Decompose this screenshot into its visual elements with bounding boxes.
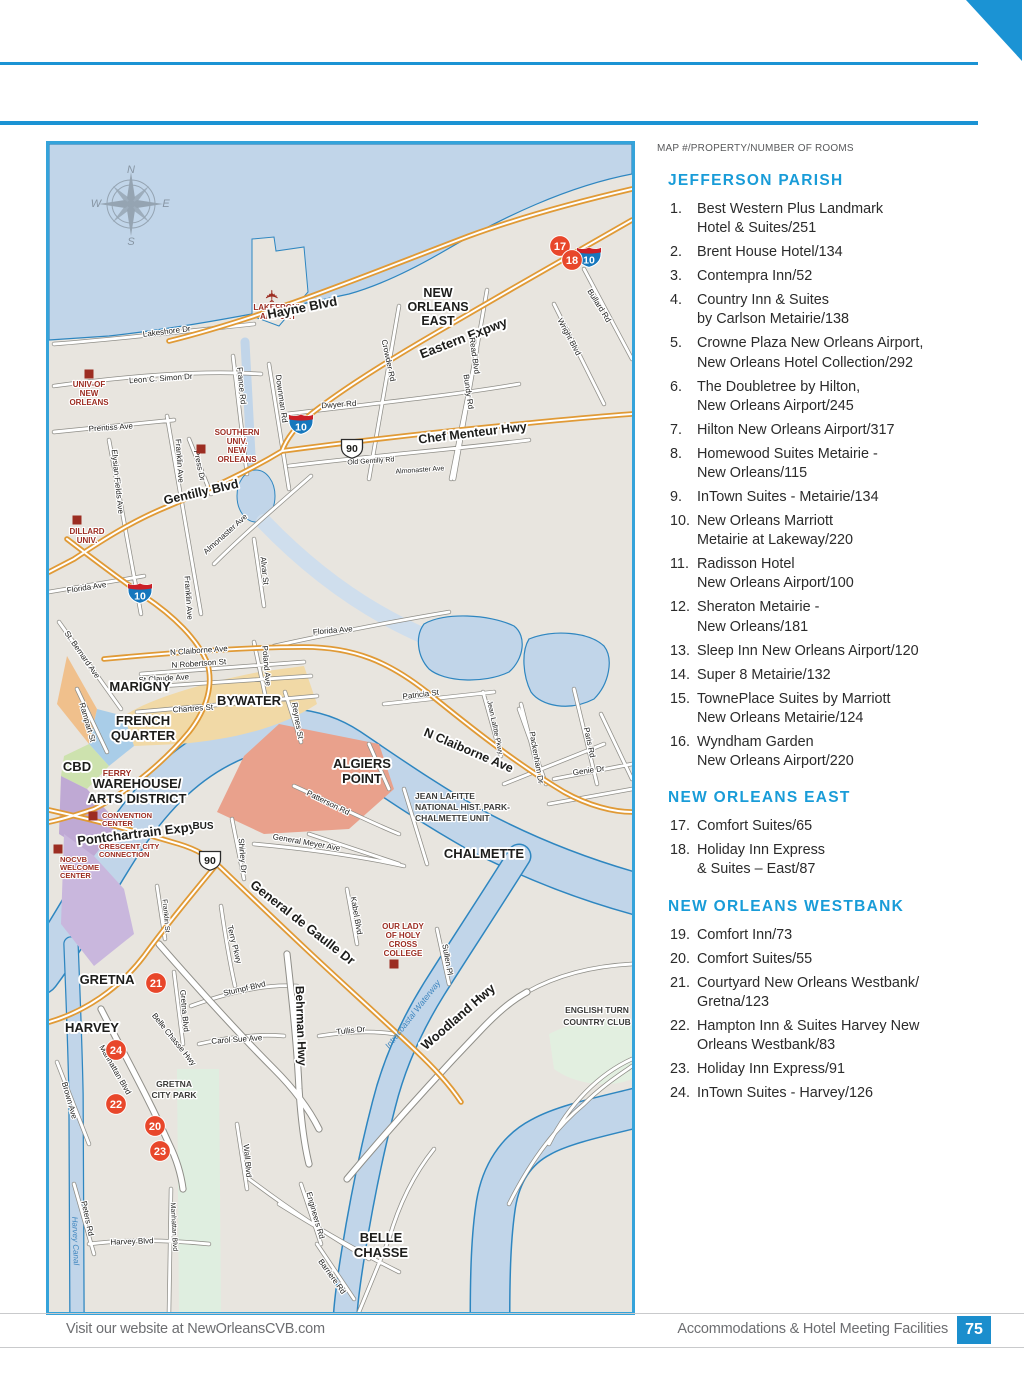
map-marker-24: 24 xyxy=(106,1040,127,1061)
map-label: UNIV. xyxy=(227,437,248,446)
section-header: NEW ORLEANS EAST xyxy=(668,789,1022,807)
page-number: 75 xyxy=(957,1316,991,1344)
section-header: NEW ORLEANS WESTBANK xyxy=(668,898,1022,916)
svg-text:18: 18 xyxy=(566,255,578,267)
svg-text:90: 90 xyxy=(346,443,358,455)
hotel-map-number: 21. xyxy=(670,974,697,1012)
hotel-name-rooms: Hilton New Orleans Airport/317 xyxy=(697,421,895,440)
pond-west xyxy=(418,616,522,680)
map-label: CHALMETTE xyxy=(444,846,524,861)
hotel-list-item: 9.InTown Suites - Metairie/134 xyxy=(670,488,1022,507)
svg-text:20: 20 xyxy=(149,1121,161,1133)
map-label: CENTER xyxy=(60,871,91,880)
hotel-map-number: 13. xyxy=(670,642,697,661)
map-label: NEW xyxy=(80,389,99,398)
map-label: BYWATER xyxy=(217,693,282,708)
hotel-list-item: 19.Comfort Inn/73 xyxy=(670,926,1022,945)
hotel-list-item: 6.The Doubletree by Hilton, New Orleans … xyxy=(670,378,1022,416)
hotel-map-number: 16. xyxy=(670,733,697,771)
footer-rule-top xyxy=(0,1313,1024,1314)
map-label: HARVEY xyxy=(65,1020,119,1035)
map-label: EAST xyxy=(421,314,455,328)
map-label: ORLEANS xyxy=(217,455,257,464)
map-label: BUS xyxy=(192,821,213,832)
hotel-name-rooms: Contempra Inn/52 xyxy=(697,267,812,286)
map-label: OUR LADY xyxy=(382,922,424,931)
hotel-map-number: 22. xyxy=(670,1017,697,1055)
svg-text:90: 90 xyxy=(204,855,216,867)
hotel-list-item: 8.Homewood Suites Metairie - New Orleans… xyxy=(670,445,1022,483)
poi-square xyxy=(73,516,82,525)
map-label: GRETNA xyxy=(156,1079,192,1089)
hotel-map-number: 17. xyxy=(670,817,697,836)
hotel-list-item: 24.InTown Suites - Harvey/126 xyxy=(670,1084,1022,1103)
hotel-map-number: 24. xyxy=(670,1084,697,1103)
hotel-name-rooms: Comfort Inn/73 xyxy=(697,926,792,945)
hotel-list-item: 16.Wyndham Garden New Orleans Airport/22… xyxy=(670,733,1022,771)
poi-square xyxy=(390,960,399,969)
hotel-list-item: 22.Hampton Inn & Suites Harvey New Orlea… xyxy=(670,1017,1022,1055)
map-label: POINT xyxy=(342,771,382,786)
hotel-name-rooms: Sleep Inn New Orleans Airport/120 xyxy=(697,642,919,661)
hotel-list-item: 5.Crowne Plaza New Orleans Airport, New … xyxy=(670,334,1022,372)
hotel-list-item: 1.Best Western Plus Landmark Hotel & Sui… xyxy=(670,200,1022,238)
hotel-list-item: 20.Comfort Suites/55 xyxy=(670,950,1022,969)
svg-text:23: 23 xyxy=(154,1146,166,1158)
hotel-list-item: 13.Sleep Inn New Orleans Airport/120 xyxy=(670,642,1022,661)
compass-letter: S xyxy=(127,236,135,248)
map-label: JEAN LAFITTE xyxy=(415,791,475,801)
index-legend: MAP #/PROPERTY/NUMBER OF ROOMS xyxy=(657,143,1022,154)
hotel-map-number: 7. xyxy=(670,421,697,440)
us90-shield: 90 xyxy=(200,852,221,871)
hotel-name-rooms: Homewood Suites Metairie - New Orleans/1… xyxy=(697,445,878,483)
hotel-name-rooms: Courtyard New Orleans Westbank/ Gretna/1… xyxy=(697,974,919,1012)
map-label: GRETNA xyxy=(80,972,136,987)
hotel-map-number: 3. xyxy=(670,267,697,286)
hotel-name-rooms: Sheraton Metairie - New Orleans/181 xyxy=(697,598,819,636)
map-label: Harvey Blvd xyxy=(110,1236,153,1246)
map-label: Behrman Hwy xyxy=(293,986,310,1067)
map-label: QUARTER xyxy=(111,728,176,743)
map-label: UNIV. xyxy=(77,536,98,545)
map-label: CBD xyxy=(63,759,91,774)
hotel-list-item: 18.Holiday Inn Express & Suites – East/8… xyxy=(670,841,1022,879)
map-label: COUNTRY CLUB xyxy=(563,1017,631,1027)
map-label: CROSS xyxy=(389,940,418,949)
hotel-map-number: 5. xyxy=(670,334,697,372)
map-label: CITY PARK xyxy=(151,1090,197,1100)
hotel-map-number: 23. xyxy=(670,1060,697,1079)
hotel-name-rooms: TownePlace Suites by Marriott New Orlean… xyxy=(697,690,891,728)
top-rule-2 xyxy=(0,121,978,125)
pond-east xyxy=(524,633,609,706)
svg-text:21: 21 xyxy=(150,978,162,990)
map-label: BELLE xyxy=(360,1230,403,1245)
footer-rule-bottom xyxy=(0,1347,1024,1348)
hotel-map-number: 14. xyxy=(670,666,697,685)
us90-shield: 90 xyxy=(342,440,363,459)
hotel-map-number: 12. xyxy=(670,598,697,636)
map-marker-18: 18 xyxy=(562,250,583,271)
hotel-list-item: 15.TownePlace Suites by Marriott New Orl… xyxy=(670,690,1022,728)
svg-text:10: 10 xyxy=(583,255,595,267)
hotel-name-rooms: Super 8 Metairie/132 xyxy=(697,666,831,685)
footer-website: Visit our website at NewOrleansCVB.com xyxy=(66,1321,325,1337)
hotel-list-item: 2.Brent House Hotel/134 xyxy=(670,243,1022,262)
map-label: ORLEANS xyxy=(407,300,468,314)
map-label: NEW xyxy=(423,286,452,300)
hotel-name-rooms: Brent House Hotel/134 xyxy=(697,243,843,262)
compass-letter: N xyxy=(127,164,135,176)
hotel-list-item: 23.Holiday Inn Express/91 xyxy=(670,1060,1022,1079)
map-label: SOUTHERN xyxy=(215,428,260,437)
map-marker-21: 21 xyxy=(146,973,167,994)
map-label: CHASSE xyxy=(354,1245,409,1260)
map-marker-20: 20 xyxy=(145,1116,166,1137)
hotel-map-number: 18. xyxy=(670,841,697,879)
map-marker-23: 23 xyxy=(150,1141,171,1162)
svg-text:17: 17 xyxy=(554,241,566,253)
map-label: COLLEGE xyxy=(384,949,423,958)
hotel-name-rooms: InTown Suites - Harvey/126 xyxy=(697,1084,873,1103)
hotel-name-rooms: Holiday Inn Express/91 xyxy=(697,1060,845,1079)
poi-square xyxy=(197,445,206,454)
hotel-name-rooms: Country Inn & Suites by Carlson Metairie… xyxy=(697,291,849,329)
map-label: UNIV-OF xyxy=(73,380,106,389)
hotel-name-rooms: Best Western Plus Landmark Hotel & Suite… xyxy=(697,200,883,238)
hotel-map-number: 8. xyxy=(670,445,697,483)
hotel-name-rooms: Comfort Suites/55 xyxy=(697,950,812,969)
map-label: ORLEANS xyxy=(69,398,109,407)
hotel-map-number: 6. xyxy=(670,378,697,416)
svg-text:22: 22 xyxy=(110,1099,122,1111)
hotel-name-rooms: Comfort Suites/65 xyxy=(697,817,812,836)
hotel-name-rooms: The Doubletree by Hilton, New Orleans Ai… xyxy=(697,378,860,416)
compass-letter: W xyxy=(91,198,103,210)
map-label: ENGLISH TURN xyxy=(565,1005,629,1015)
hotel-map-number: 15. xyxy=(670,690,697,728)
airplane-icon: ✈ xyxy=(263,289,282,303)
map-label: MARIGNY xyxy=(109,679,171,694)
hotel-list-item: 10.New Orleans Marriott Metairie at Lake… xyxy=(670,512,1022,550)
map-label: CHALMETTE UNIT xyxy=(415,813,490,823)
hotel-map-number: 2. xyxy=(670,243,697,262)
hotel-name-rooms: Crowne Plaza New Orleans Airport, New Or… xyxy=(697,334,923,372)
hotel-map-number: 10. xyxy=(670,512,697,550)
map-label: DILLARD xyxy=(69,527,104,536)
hotel-map-number: 19. xyxy=(670,926,697,945)
hotel-name-rooms: Holiday Inn Express & Suites – East/87 xyxy=(697,841,825,879)
map-label: Harvey Canal xyxy=(70,1217,81,1266)
hotel-list-item: 14.Super 8 Metairie/132 xyxy=(670,666,1022,685)
hotel-map-number: 4. xyxy=(670,291,697,329)
map-label: OF HOLY xyxy=(386,931,421,940)
hotel-map-number: 11. xyxy=(670,555,697,593)
svg-text:10: 10 xyxy=(134,591,146,603)
hotel-index-column: MAP #/PROPERTY/NUMBER OF ROOMS JEFFERSON… xyxy=(656,143,1022,1108)
hotel-map-number: 9. xyxy=(670,488,697,507)
hotel-list-item: 12.Sheraton Metairie - New Orleans/181 xyxy=(670,598,1022,636)
hotel-name-rooms: Wyndham Garden New Orleans Airport/220 xyxy=(697,733,854,771)
map-marker-22: 22 xyxy=(106,1094,127,1115)
corner-accent xyxy=(962,0,1022,62)
map-label: FRENCH xyxy=(116,713,170,728)
hotel-name-rooms: New Orleans Marriott Metairie at Lakeway… xyxy=(697,512,853,550)
hotel-list-item: 21.Courtyard New Orleans Westbank/ Gretn… xyxy=(670,974,1022,1012)
hotel-list-item: 17.Comfort Suites/65 xyxy=(670,817,1022,836)
map-label: WAREHOUSE/ xyxy=(93,776,182,791)
map-label: ALGIERS xyxy=(333,756,391,771)
map-label: NATIONAL HIST. PARK- xyxy=(415,802,510,812)
city-map: ✈LAKEFRONTAIRPORTLakeshore DrLeon C. Sim… xyxy=(46,141,635,1315)
map-label: NEW xyxy=(228,446,247,455)
poi-square xyxy=(54,845,63,854)
svg-text:10: 10 xyxy=(295,422,307,434)
section-header: JEFFERSON PARISH xyxy=(668,172,1022,190)
hotel-map-number: 1. xyxy=(670,200,697,238)
poi-square xyxy=(89,812,98,821)
hotel-name-rooms: InTown Suites - Metairie/134 xyxy=(697,488,879,507)
hotel-list-item: 11.Radisson Hotel New Orleans Airport/10… xyxy=(670,555,1022,593)
hotel-map-number: 20. xyxy=(670,950,697,969)
poi-square xyxy=(85,370,94,379)
top-rule-1 xyxy=(0,62,978,65)
map-label: CONNECTION xyxy=(99,850,149,859)
footer-section-title: Accommodations & Hotel Meeting Facilitie… xyxy=(677,1321,948,1337)
hotel-name-rooms: Radisson Hotel New Orleans Airport/100 xyxy=(697,555,854,593)
hotel-list-item: 7.Hilton New Orleans Airport/317 xyxy=(670,421,1022,440)
hotel-name-rooms: Hampton Inn & Suites Harvey New Orleans … xyxy=(697,1017,919,1055)
compass-letter: E xyxy=(162,198,170,210)
svg-text:24: 24 xyxy=(110,1045,123,1057)
hotel-list-item: 3.Contempra Inn/52 xyxy=(670,267,1022,286)
map-label: ARTS DISTRICT xyxy=(88,791,187,806)
hotel-list-item: 4.Country Inn & Suites by Carlson Metair… xyxy=(670,291,1022,329)
